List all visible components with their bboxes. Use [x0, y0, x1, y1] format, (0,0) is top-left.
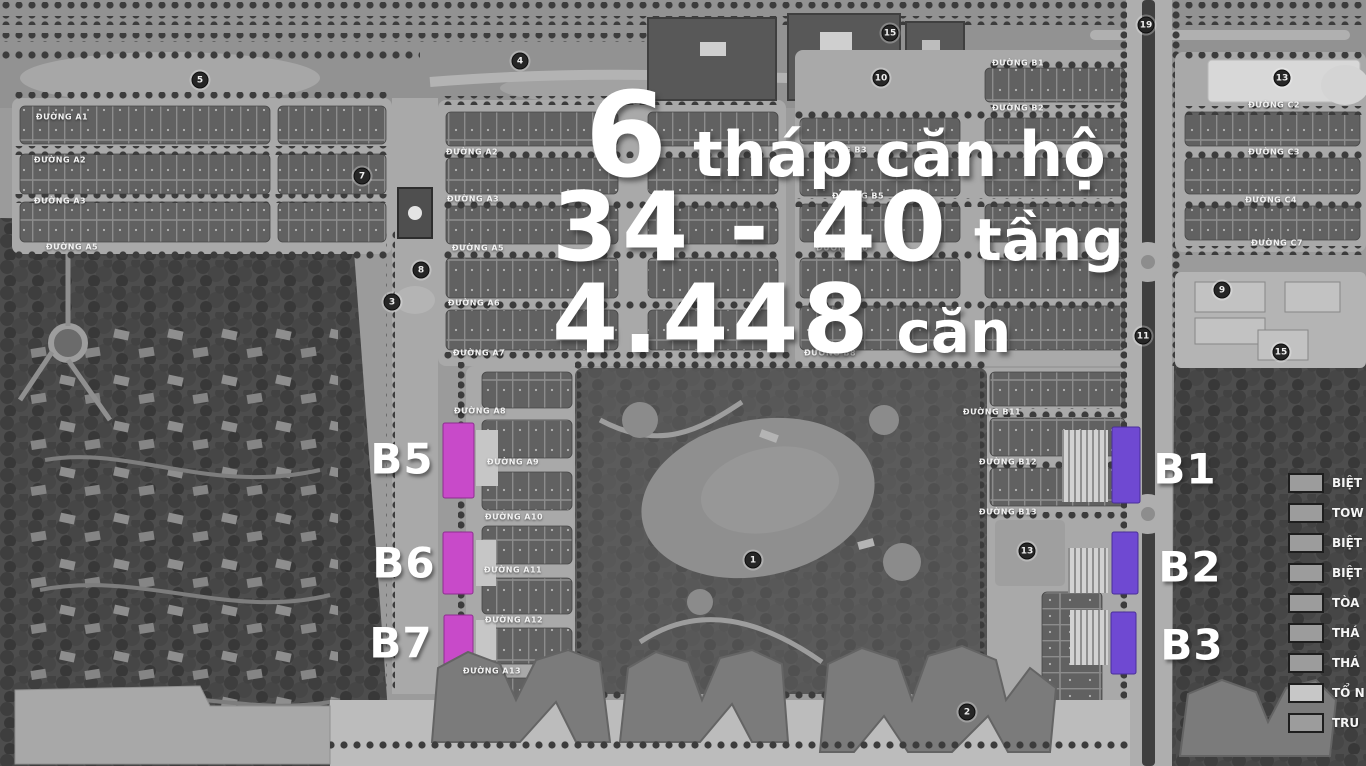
street-label-c4: ĐƯỜNG C4	[1245, 196, 1297, 205]
street-label-b1: ĐƯỜNG B1	[992, 59, 1044, 68]
map-marker-4: 4	[512, 53, 529, 70]
street-label-a5-west: ĐƯỜNG A5	[46, 243, 98, 252]
street-label-a7: ĐƯỜNG A7	[453, 349, 505, 358]
map-marker-5: 5	[192, 72, 209, 89]
tower-b3	[1111, 612, 1136, 674]
map-marker-3: 3	[384, 294, 401, 311]
legend-label: TOW	[1332, 506, 1364, 520]
block-label-b1: B1	[1153, 445, 1216, 494]
tower-b6	[443, 532, 473, 594]
street-label-a3: ĐƯỜNG A3	[447, 195, 499, 204]
street-label-a5: ĐƯỜNG A5	[452, 244, 504, 253]
street-label-a10: ĐƯỜNG A10	[485, 513, 543, 522]
street-label-a1: ĐƯỜNG A1	[36, 113, 88, 122]
map-marker-15a: 15	[882, 25, 899, 42]
map-marker-13b: 13	[1019, 543, 1036, 560]
legend-label: THÁ	[1332, 626, 1360, 640]
legend-swatch	[1288, 653, 1324, 673]
street-label-a2-west: ĐƯỜNG A2	[34, 156, 86, 165]
legend-label: TÒA	[1332, 596, 1359, 610]
legend-label: BIỆT	[1332, 566, 1362, 580]
legend-swatch	[1288, 473, 1324, 493]
legend-item: BIỆT	[1288, 468, 1366, 498]
street-label-a11: ĐƯỜNG A11	[484, 566, 542, 575]
street-label-a12: ĐƯỜNG A12	[485, 616, 543, 625]
legend-item: TỔ N	[1288, 678, 1366, 708]
central-park	[575, 360, 989, 699]
map-marker-15b: 15	[1273, 344, 1290, 361]
block-label-b2: B2	[1158, 543, 1221, 592]
legend-label: TỔ N	[1332, 686, 1365, 700]
map-marker-9: 9	[1214, 282, 1231, 299]
street-label-b13: ĐƯỜNG B13	[979, 508, 1037, 517]
map-marker-1: 1	[745, 552, 762, 569]
legend-swatch	[1288, 623, 1324, 643]
map-marker-13a: 13	[1274, 70, 1291, 87]
street-label-c2: ĐƯỜNG C2	[1248, 101, 1300, 110]
legend-swatch	[1288, 533, 1324, 553]
street-label-b12: ĐƯỜNG B12	[979, 458, 1037, 467]
street-label-a3-west: ĐƯỜNG A3	[34, 197, 86, 206]
headline-floors-unit: tầng	[974, 206, 1124, 274]
street-label-a9: ĐƯỜNG A9	[487, 458, 539, 467]
civic-complex	[1175, 272, 1366, 368]
headline-line-2: 34 - 40 tầng	[552, 186, 1124, 274]
headline-units-count: 4.448	[552, 278, 873, 364]
legend-item: TRU	[1288, 708, 1366, 738]
street-label-c7: ĐƯỜNG C7	[1251, 239, 1303, 248]
headline-floors-range: 34 - 40	[552, 186, 950, 272]
block-label-b6: B6	[372, 539, 435, 588]
forest-left	[0, 218, 392, 766]
headline-units-unit: căn	[897, 298, 1012, 366]
tower-b1	[1112, 427, 1140, 503]
map-marker-8: 8	[413, 262, 430, 279]
map-marker-19: 19	[1138, 17, 1155, 34]
block-label-b7: B7	[369, 619, 432, 668]
legend-label: BIỆT	[1332, 536, 1362, 550]
legend-item: THÁ	[1288, 648, 1366, 678]
block-label-b3: B3	[1160, 621, 1223, 670]
street-label-a6: ĐƯỜNG A6	[448, 299, 500, 308]
legend-swatch	[1288, 713, 1324, 733]
legend-item: TOW	[1288, 498, 1366, 528]
map-marker-11: 11	[1135, 328, 1152, 345]
access-road-west	[386, 98, 438, 694]
headline-line-3: 4.448 căn	[552, 278, 1011, 366]
map-legend: BIỆT TOW BIỆT BIỆT TÒA THÁ THÁ TỔ N	[1288, 468, 1366, 738]
street-label-c3: ĐƯỜNG C3	[1248, 148, 1300, 157]
tower-b2	[1112, 532, 1138, 594]
tower-b5	[443, 423, 474, 498]
legend-label: BIỆT	[1332, 476, 1362, 490]
legend-swatch	[1288, 683, 1324, 703]
legend-item: BIỆT	[1288, 558, 1366, 588]
street-label-a13: ĐƯỜNG A13	[463, 667, 521, 676]
street-label-a2: ĐƯỜNG A2	[446, 148, 498, 157]
legend-item: BIỆT	[1288, 528, 1366, 558]
masterplan-map: ĐƯỜNG A1 ĐƯỜNG A2 ĐƯỜNG A3 ĐƯỜNG A5 ĐƯỜN…	[0, 0, 1366, 766]
legend-swatch	[1288, 503, 1324, 523]
map-marker-7: 7	[354, 168, 371, 185]
condo-bars-b1-b2-b3	[1062, 427, 1140, 674]
legend-swatch	[1288, 593, 1324, 613]
legend-swatch	[1288, 563, 1324, 583]
legend-item: TÒA	[1288, 588, 1366, 618]
legend-item: THÁ	[1288, 618, 1366, 648]
block-label-b5: B5	[370, 435, 433, 484]
street-label-a8: ĐƯỜNG A8	[454, 407, 506, 416]
legend-label: TRU	[1332, 716, 1359, 730]
street-label-b11: ĐƯỜNG B11	[963, 408, 1021, 417]
legend-label: THÁ	[1332, 656, 1360, 670]
map-marker-2: 2	[959, 704, 976, 721]
